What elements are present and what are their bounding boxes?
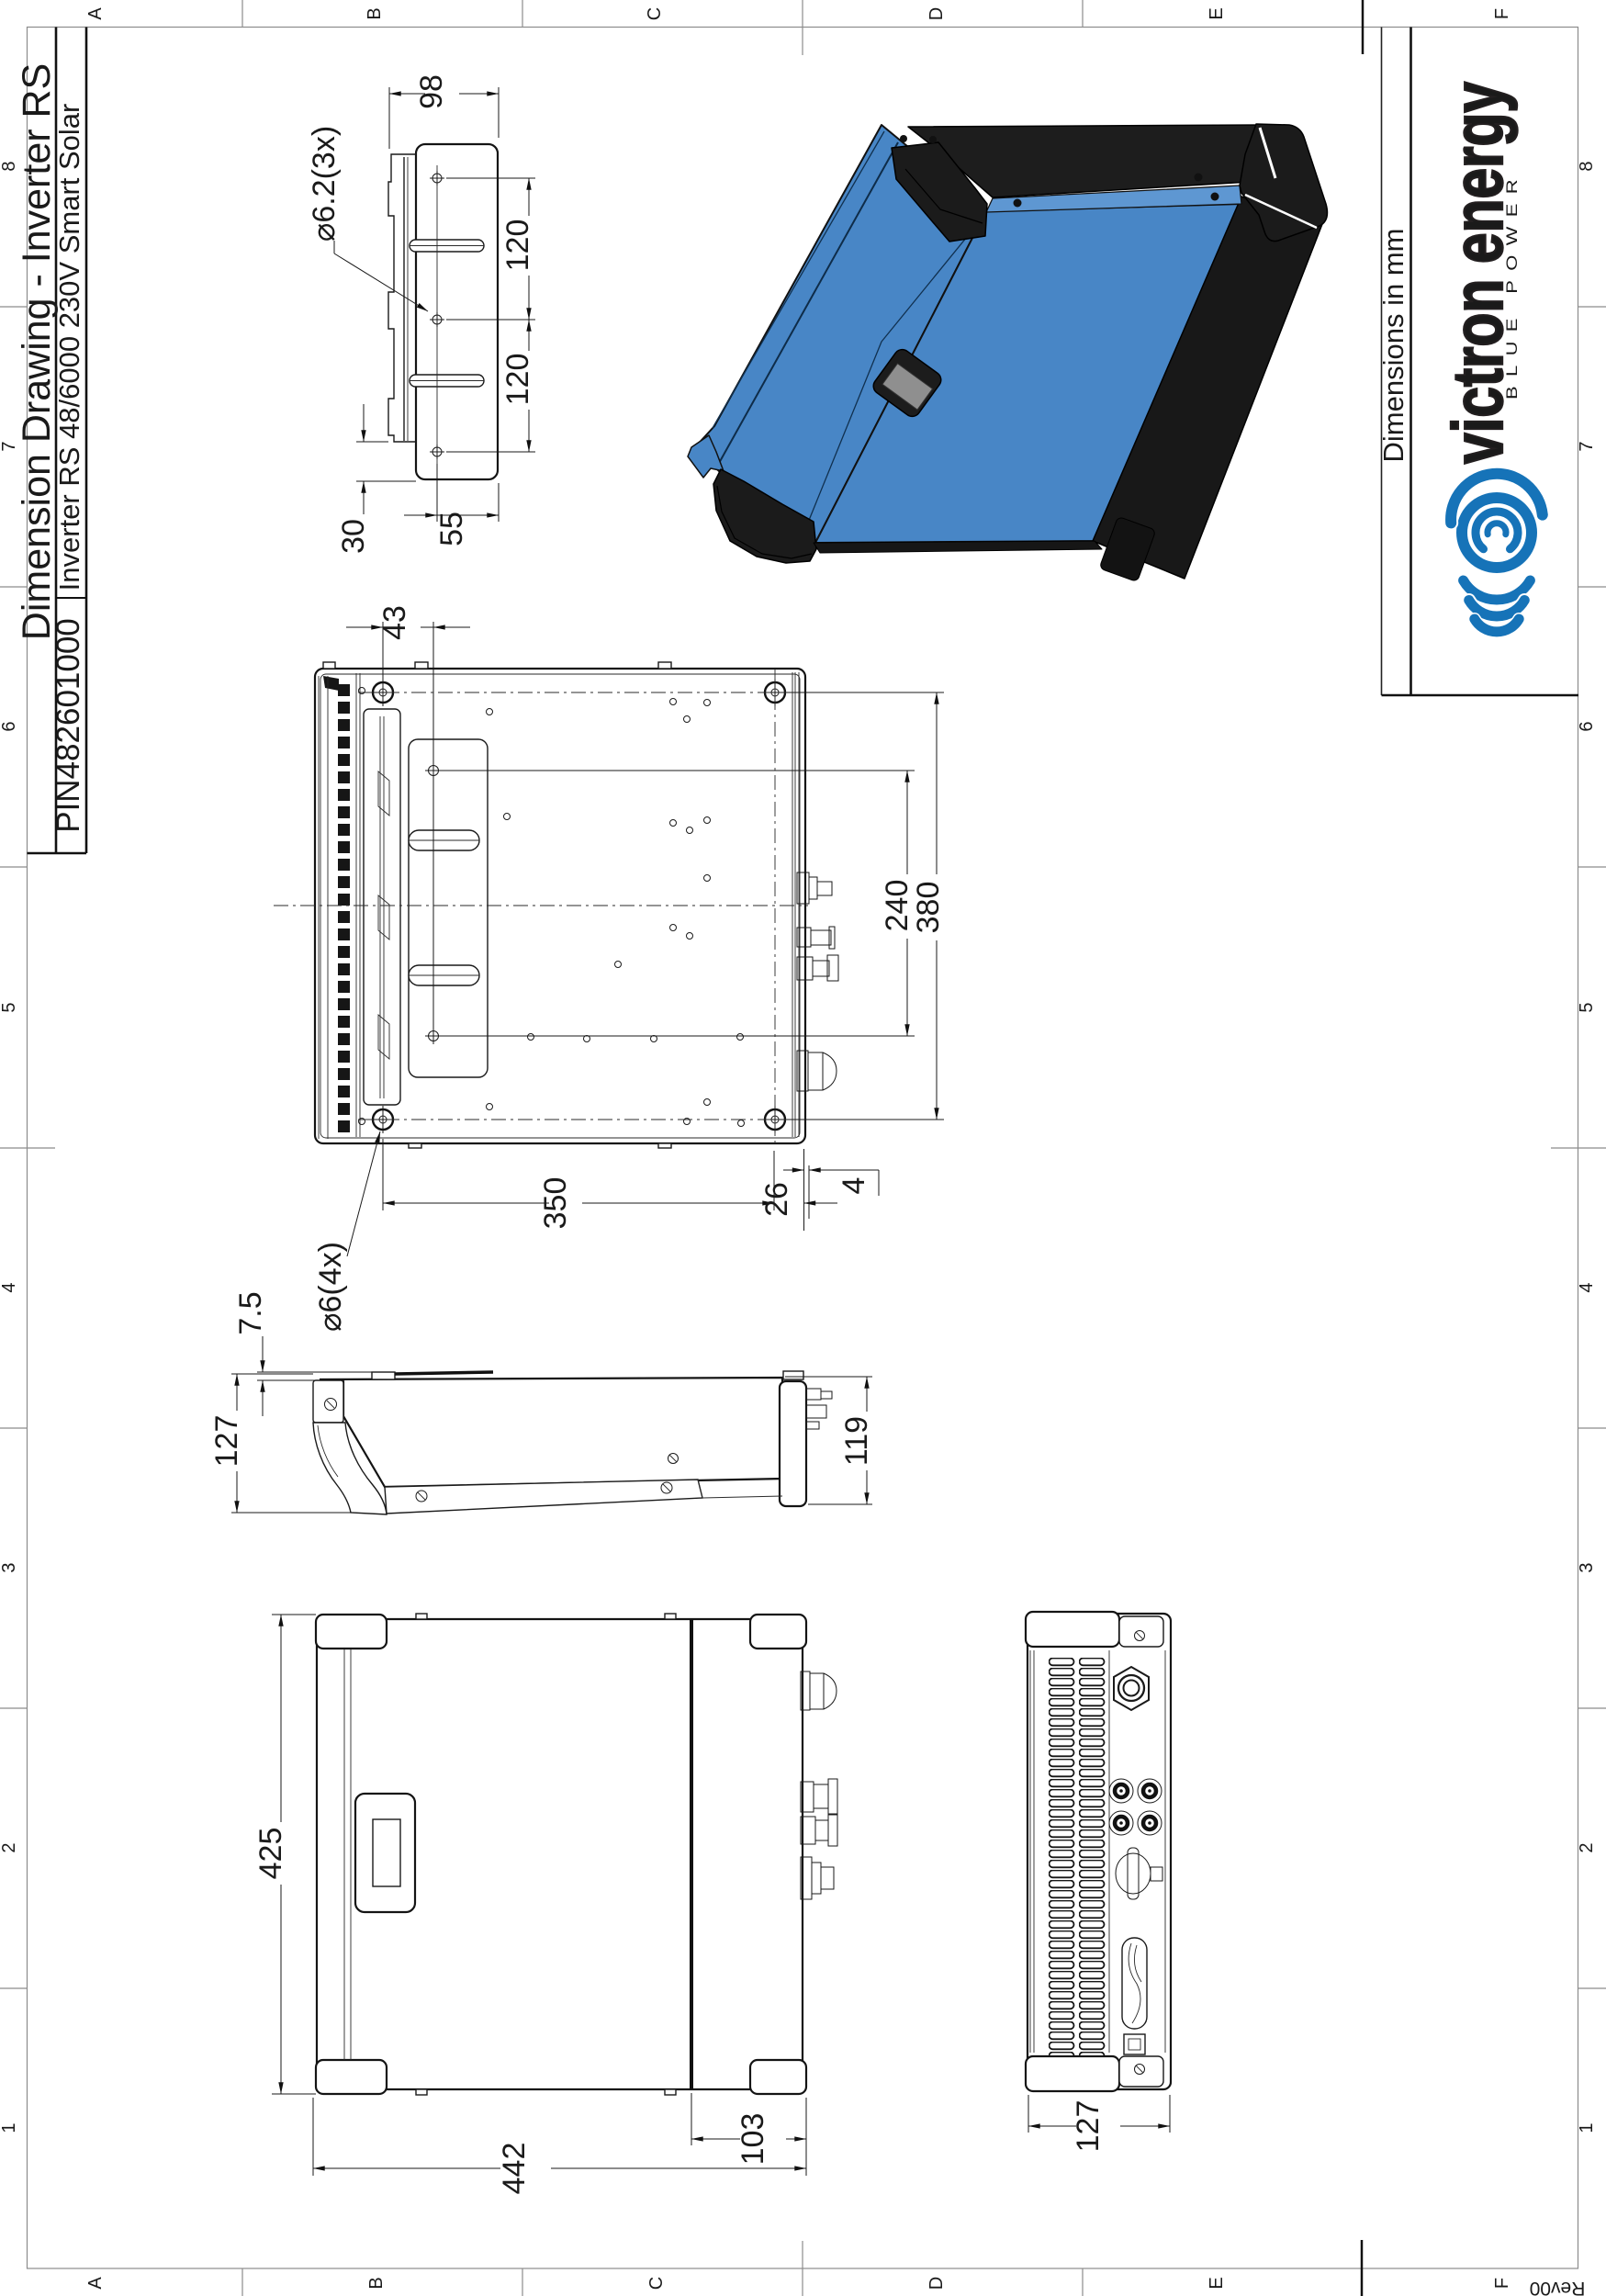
svg-text:6: 6 — [0, 721, 19, 731]
svg-text:55: 55 — [434, 512, 469, 546]
svg-text:Dimension Drawing - Inverter R: Dimension Drawing - Inverter RS — [15, 63, 59, 640]
svg-text:A: A — [85, 2277, 106, 2290]
svg-text:Rev00: Rev00 — [1530, 2278, 1586, 2296]
svg-text:4: 4 — [837, 1177, 871, 1195]
svg-text:C: C — [645, 7, 665, 20]
svg-text:119: 119 — [839, 1416, 874, 1466]
svg-text:2: 2 — [1577, 1842, 1597, 1852]
svg-text:⌀6(4x): ⌀6(4x) — [313, 1242, 348, 1332]
svg-text:3: 3 — [0, 1562, 19, 1572]
svg-text:E: E — [1207, 7, 1227, 19]
svg-text:F: F — [1492, 2278, 1512, 2289]
svg-text:A: A — [85, 7, 106, 20]
svg-text:4: 4 — [0, 1282, 19, 1292]
svg-text:Inverter RS 48/6000 230V Smart: Inverter RS 48/6000 230V Smart Solar — [53, 104, 85, 591]
svg-text:442: 442 — [497, 2143, 532, 2195]
svg-text:120: 120 — [500, 354, 535, 406]
svg-text:2: 2 — [0, 1842, 19, 1852]
svg-text:1: 1 — [0, 2122, 19, 2133]
svg-text:5: 5 — [0, 1002, 19, 1012]
svg-text:120: 120 — [500, 219, 535, 272]
svg-text:127: 127 — [1071, 2100, 1106, 2153]
svg-text:6: 6 — [1577, 721, 1597, 731]
svg-text:1: 1 — [1577, 2122, 1597, 2133]
svg-text:7: 7 — [1577, 441, 1597, 451]
svg-text:3: 3 — [1577, 1562, 1597, 1572]
svg-text:D: D — [927, 7, 947, 20]
svg-text:D: D — [927, 2277, 947, 2290]
svg-text:Dimensions in mm: Dimensions in mm — [1377, 229, 1409, 463]
svg-text:5: 5 — [1577, 1002, 1597, 1012]
svg-text:103: 103 — [736, 2113, 770, 2166]
svg-text:C: C — [646, 2277, 667, 2290]
svg-text:B: B — [365, 7, 385, 19]
svg-text:127: 127 — [209, 1415, 244, 1468]
svg-text:4: 4 — [1577, 1282, 1597, 1292]
svg-text:350: 350 — [538, 1177, 573, 1230]
svg-text:BLUE POWER: BLUE POWER — [1503, 170, 1521, 400]
svg-text:PIN482601000: PIN482601000 — [51, 618, 86, 833]
svg-text:43: 43 — [377, 605, 412, 640]
svg-text:E: E — [1207, 2277, 1227, 2289]
svg-text:7.5: 7.5 — [233, 1291, 268, 1334]
svg-text:240: 240 — [880, 880, 915, 932]
svg-text:98: 98 — [414, 74, 449, 109]
svg-text:30: 30 — [336, 519, 371, 554]
svg-text:⌀6.2(3x): ⌀6.2(3x) — [307, 126, 342, 242]
svg-text:8: 8 — [1577, 161, 1597, 171]
svg-text:B: B — [366, 2277, 387, 2289]
svg-text:26: 26 — [759, 1182, 794, 1217]
svg-text:380: 380 — [911, 882, 946, 934]
svg-text:F: F — [1492, 8, 1512, 19]
svg-text:425: 425 — [253, 1828, 288, 1880]
